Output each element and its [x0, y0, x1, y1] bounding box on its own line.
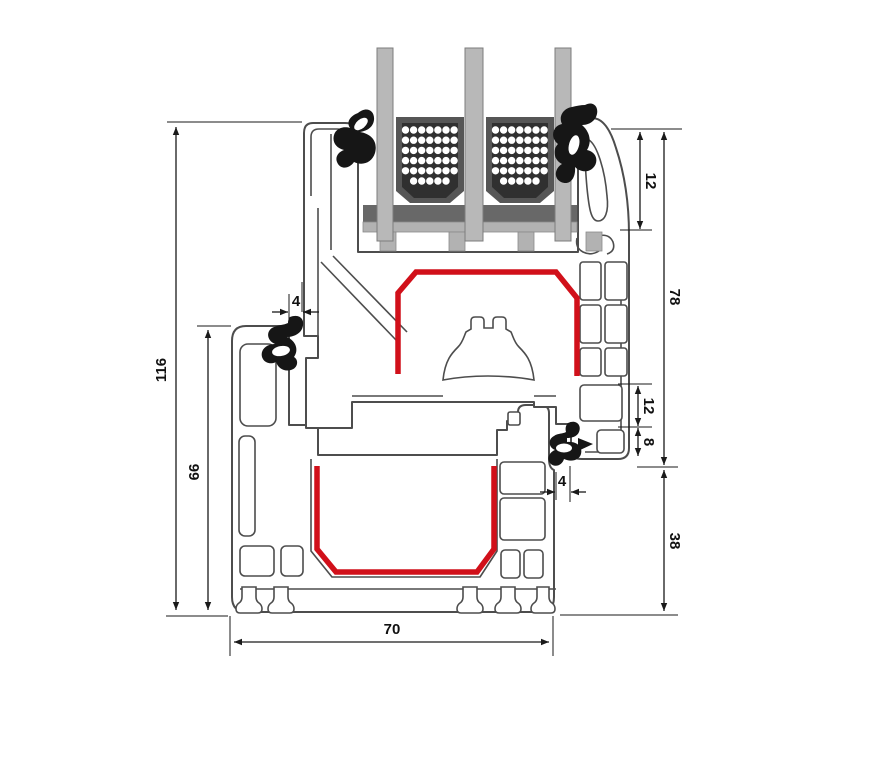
sash-chamber	[597, 430, 624, 453]
frame-chamber	[500, 498, 545, 540]
sash-chamber	[580, 262, 601, 300]
frame-chamber	[240, 546, 274, 576]
sash-chamber	[605, 348, 627, 376]
dim-step-8: 8	[638, 428, 657, 456]
dim-label-step-8: 8	[640, 438, 657, 446]
dim-label-bottom-gap: 4	[558, 473, 567, 490]
dim-depth: 70	[234, 621, 549, 642]
dim-label-depth: 70	[384, 621, 401, 638]
dim-label-top-gap: 4	[292, 293, 301, 310]
dim-frame-height: 66	[186, 330, 208, 610]
sash-chamber	[580, 385, 622, 421]
window-profile-cross-section: 116 66 4 12 78 12 8	[0, 0, 877, 766]
frame-chamber	[501, 550, 520, 578]
dim-total-height: 116	[153, 127, 176, 610]
dim-label-glazing-cover: 12	[642, 173, 659, 190]
dim-label-step-12: 12	[640, 398, 657, 415]
frame-chamber	[524, 550, 543, 578]
dim-sash-height: 78	[664, 132, 683, 465]
sash-chamber	[605, 305, 627, 343]
dim-step-12: 12	[638, 386, 657, 426]
dim-label-frame-face: 38	[666, 533, 683, 550]
glass-pane-2	[465, 48, 483, 241]
dim-glazing-cover: 12	[640, 132, 659, 229]
dim-label-total-height: 116	[153, 358, 170, 382]
spacer-bar-1	[396, 117, 464, 203]
dim-frame-face: 38	[664, 470, 683, 611]
sash-chamber	[580, 305, 601, 343]
frame-chamber	[500, 462, 545, 494]
dim-label-sash-height: 78	[666, 289, 683, 306]
glass-pane-1	[377, 48, 393, 241]
gasket-sash-top-left	[333, 109, 375, 167]
cross-section-diagram: 116 66 4 12 78 12 8	[0, 0, 877, 766]
sash-chamber	[605, 262, 627, 300]
frame-chamber	[239, 436, 255, 536]
frame-chamber	[281, 546, 303, 576]
dim-label-frame-height: 66	[186, 464, 203, 481]
spacer-bar-2	[486, 117, 554, 203]
sash-chamber	[580, 348, 601, 376]
frame-upstand-notch	[508, 412, 520, 425]
